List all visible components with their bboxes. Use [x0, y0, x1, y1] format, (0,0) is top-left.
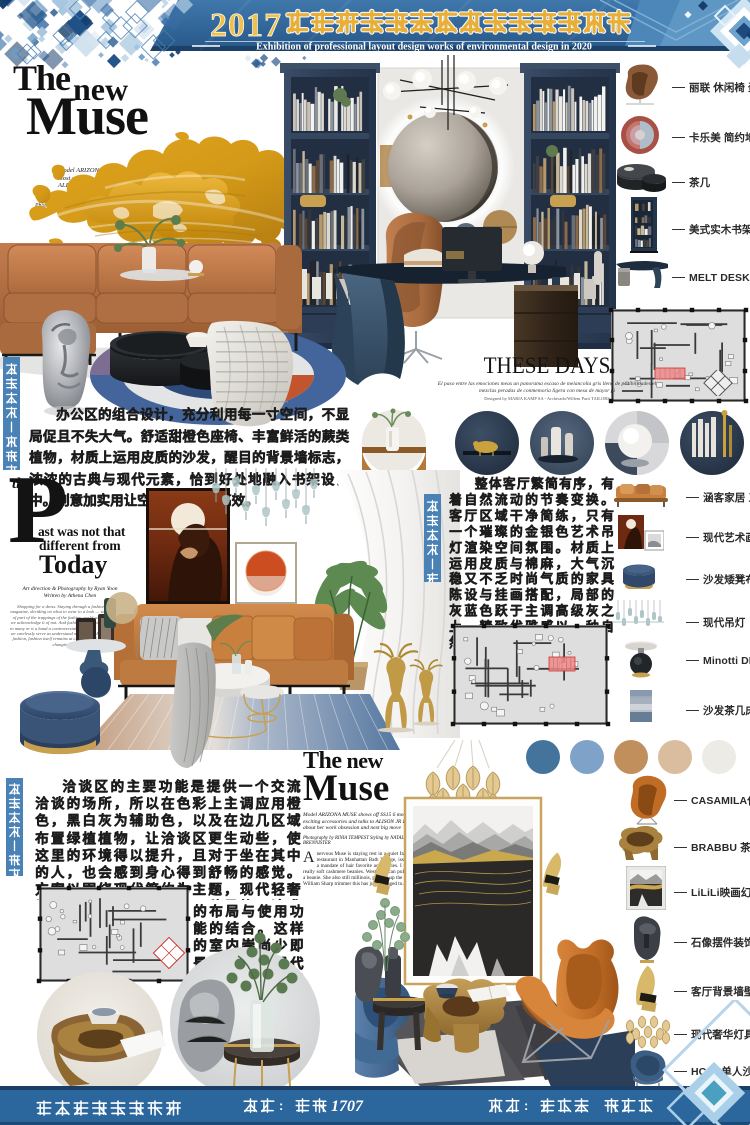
- svg-text::: :: [279, 1098, 283, 1113]
- svg-text:1707: 1707: [331, 1098, 364, 1115]
- svg-text:2017: 2017: [210, 7, 282, 44]
- svg-text::: :: [524, 1098, 528, 1113]
- svg-text:Exhibition of professional lay: Exhibition of professional layout design…: [256, 42, 592, 53]
